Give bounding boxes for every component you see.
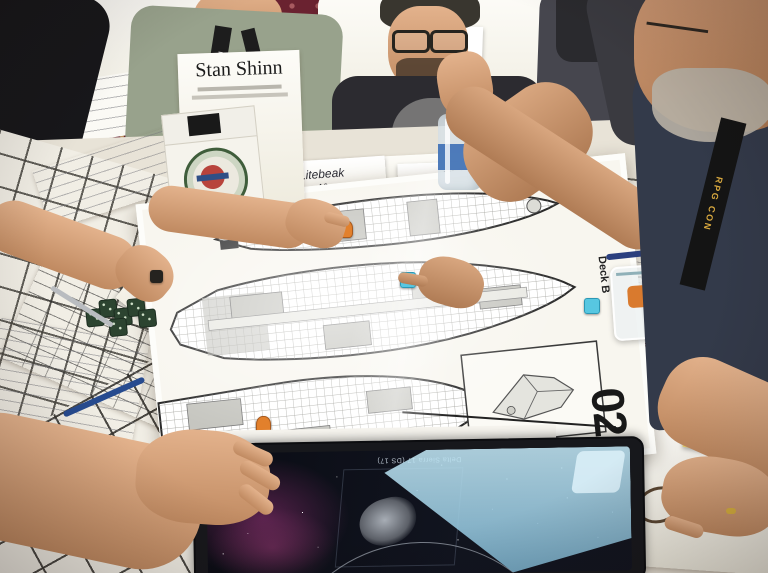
photo-vignette: [0, 0, 768, 573]
photo-stage: NORTH TEXAS Litebeak A9 Nick A5 Rick "Fu…: [0, 0, 768, 573]
